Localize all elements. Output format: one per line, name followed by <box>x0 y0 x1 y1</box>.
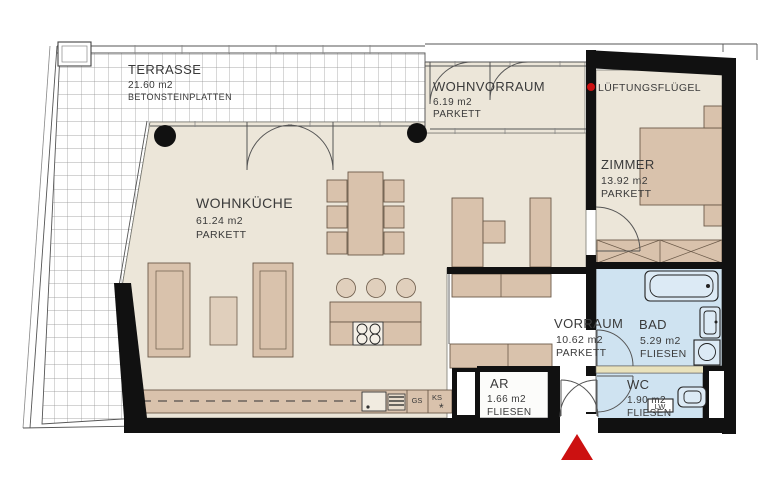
shaft-niche <box>709 371 724 419</box>
oven <box>388 394 405 410</box>
entrance-arrow <box>561 434 593 460</box>
floor-plan: GS KS * <box>0 0 770 484</box>
terrasse-floor: BETONSTEINPLATTEN <box>128 92 232 102</box>
wohnvorraum-name: WOHNVORRAUM <box>433 79 545 94</box>
terrasse-name: TERRASSE <box>128 62 201 77</box>
wall-ar-east <box>548 366 560 418</box>
bad-floor: FLIESEN <box>640 348 687 360</box>
wohnkueche-area: 61.24 m2 <box>196 215 243 227</box>
ar-name: AR <box>490 376 509 391</box>
ar-door-opening <box>457 372 475 415</box>
kitchen-island <box>330 302 421 322</box>
bad-name: BAD <box>639 317 667 332</box>
wall-zimmer-west <box>586 50 596 210</box>
zimmer-name: ZIMMER <box>601 157 655 172</box>
ar-area: 1.66 m2 <box>487 394 526 405</box>
bar-stools <box>337 279 416 298</box>
ar-floor: FLIESEN <box>487 407 531 418</box>
fridge-star: * <box>439 401 444 415</box>
zimmer-floor: PARKETT <box>601 188 652 200</box>
wc-area: 1.90 m2 <box>627 395 666 406</box>
partition-bad-wc <box>596 366 706 373</box>
kitchen-sink <box>362 392 386 411</box>
ventilation-marker-dot <box>587 83 595 91</box>
toilet <box>678 387 706 407</box>
bathtub-drain <box>706 284 710 288</box>
wohnvorraum-floor: PARKETT <box>433 109 481 120</box>
wc-floor: FLIESEN <box>627 408 671 419</box>
bad-area: 5.29 m2 <box>640 335 681 347</box>
terrasse-area: 21.60 m2 <box>128 80 173 91</box>
nightstand <box>704 106 722 128</box>
wall-vorraum-wc <box>586 366 596 376</box>
floor-plan-drawing: GS KS * <box>0 0 770 484</box>
wall-south <box>124 418 560 433</box>
wall-kueche-vorraum <box>447 267 596 274</box>
vorraum-area: 10.62 m2 <box>556 334 603 346</box>
dining-table <box>348 172 383 255</box>
column <box>154 125 176 147</box>
wc-name: WC <box>627 377 649 392</box>
terrace-pillar <box>58 42 91 66</box>
wohnkueche-name: WOHNKÜCHE <box>196 194 293 211</box>
sofa <box>148 263 190 357</box>
wall-ar-north <box>477 366 548 372</box>
entrance-opening <box>560 414 598 433</box>
sofa <box>253 263 293 357</box>
terrace-edge-line <box>23 426 138 428</box>
vorraum-floor: PARKETT <box>556 347 607 359</box>
coffee-table <box>210 297 237 345</box>
lueftungsfluegel-label: LÜFTUNGSFLÜGEL <box>598 82 701 94</box>
wall-south <box>598 418 736 433</box>
zimmer-area: 13.92 m2 <box>601 175 648 187</box>
column <box>407 123 427 143</box>
vorraum-name: VORRAUM <box>554 316 623 331</box>
dishwasher-label: GS <box>412 396 423 405</box>
kitchen-counter: GS KS * <box>136 390 452 415</box>
cabinets <box>450 198 552 368</box>
wall-zimmer-bad <box>596 262 722 269</box>
wohnkueche-floor: PARKETT <box>196 229 247 241</box>
wohnvorraum-area: 6.19 m2 <box>433 97 472 108</box>
nightstand <box>704 205 722 226</box>
